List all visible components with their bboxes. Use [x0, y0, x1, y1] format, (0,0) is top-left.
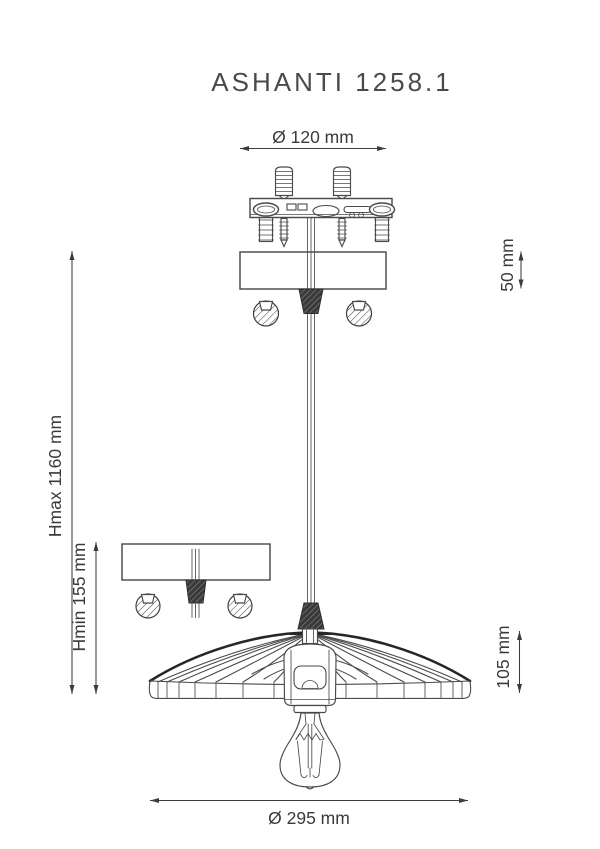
- dim-label-shade-height: 105 mm: [493, 625, 513, 688]
- edison-bulb: [280, 713, 340, 789]
- canopy-min-body: [122, 544, 270, 580]
- socket-lip: [294, 706, 326, 713]
- dimension-shade-height: 105 mm: [493, 625, 522, 693]
- cord-grip-shade: [298, 603, 324, 629]
- technical-drawing: ASHANTI 1258.1: [0, 0, 600, 849]
- dimension-canopy-height: 50 mm: [497, 238, 524, 291]
- wall-plug-right-icon: [334, 167, 351, 200]
- canopy-min-cap-left-icon: [136, 594, 160, 618]
- ceiling-canopy: [240, 252, 386, 326]
- canopy-body: [240, 252, 386, 289]
- dim-label-shade-diameter: Ø 295 mm: [268, 808, 350, 828]
- anchor-screw-left-icon: [280, 219, 289, 247]
- mount-screw-right-icon: [375, 215, 390, 242]
- dim-label-height-max: Hmax 1160 mm: [45, 415, 65, 537]
- cord-grip-min: [186, 580, 206, 603]
- lamp-socket: [284, 644, 336, 713]
- wall-plug-left-icon: [276, 167, 293, 200]
- canopy-cap-right-icon: [347, 301, 372, 326]
- mounting-bracket: [250, 167, 395, 247]
- shade-stem: [303, 629, 318, 644]
- drawing-page: ASHANTI 1258.1: [0, 0, 600, 849]
- anchor-screw-right-icon: [338, 219, 347, 247]
- dim-label-mount-diameter: Ø 120 mm: [272, 127, 354, 147]
- dimension-height-min: Hmin 155 mm: [69, 542, 99, 694]
- canopy-min-view: [122, 544, 270, 618]
- page-title: ASHANTI 1258.1: [211, 67, 452, 97]
- canopy-min-cap-right-icon: [228, 594, 252, 618]
- dim-label-canopy-height: 50 mm: [497, 238, 517, 291]
- suspension-cord: [308, 218, 315, 604]
- dimension-shade-diameter: Ø 295 mm: [150, 798, 468, 828]
- canopy-cap-left-icon: [254, 301, 279, 326]
- mount-screw-left-icon: [259, 215, 274, 242]
- cord-grip-top: [299, 289, 323, 314]
- dim-label-height-min: Hmin 155 mm: [69, 543, 89, 652]
- dimension-mount-diameter: Ø 120 mm: [240, 127, 386, 151]
